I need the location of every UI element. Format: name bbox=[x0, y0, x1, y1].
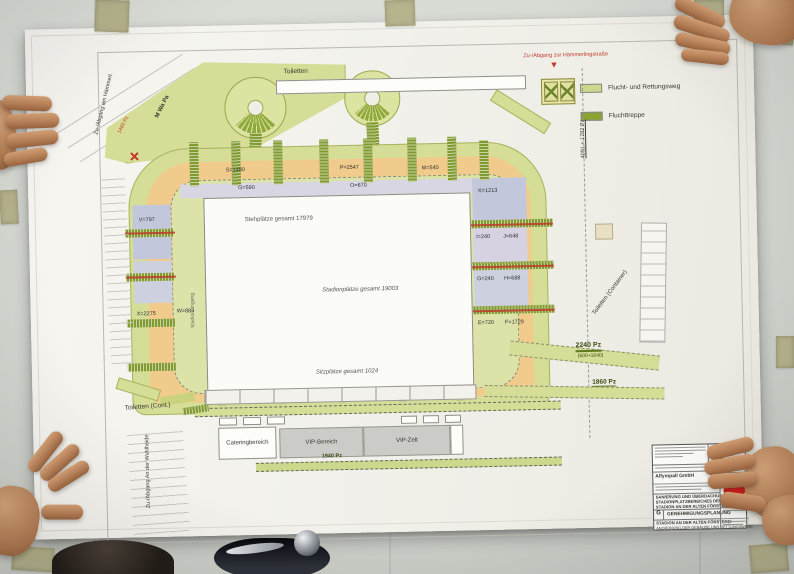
foreground-head bbox=[52, 540, 174, 574]
section-label: X=2275 bbox=[137, 311, 156, 317]
route-capacity-2240-detail: (600+1640) bbox=[578, 354, 604, 360]
parking-ladder-east bbox=[639, 222, 667, 342]
stair-strip bbox=[273, 140, 283, 184]
toiletten-top-label: Toiletten bbox=[284, 68, 308, 76]
section-label: K=1213 bbox=[478, 188, 497, 194]
section-label: E=720 bbox=[478, 320, 494, 326]
finger bbox=[5, 112, 59, 129]
stair-strip bbox=[128, 363, 176, 372]
small-building bbox=[450, 425, 464, 455]
vip-zelt-building: VIP-Zelt bbox=[363, 425, 451, 457]
section-label: H=688 bbox=[504, 275, 520, 281]
catering-label: Cateringbereich bbox=[219, 440, 275, 448]
section-label: P=2547 bbox=[340, 165, 359, 171]
foreground-shiny-object bbox=[214, 530, 330, 574]
object-knob bbox=[294, 530, 320, 556]
existing-building bbox=[595, 223, 613, 239]
stair-x-icon bbox=[560, 81, 574, 101]
stair-strip bbox=[407, 138, 417, 182]
hand-bottom-right bbox=[708, 416, 794, 549]
section-label: G=240 bbox=[477, 276, 494, 282]
finger bbox=[2, 95, 52, 112]
plan-sheet: Zu-/Abgang am Hämmerl. M Wa Pa 1460 Pz T… bbox=[25, 14, 764, 539]
vip-zelt-label: VIP-Zelt bbox=[364, 437, 449, 445]
legend-label-escape-stair: Fluchttreppe bbox=[609, 112, 645, 120]
route-capacity-1940: 1940 Pz bbox=[322, 453, 342, 459]
tape-piece bbox=[94, 0, 129, 33]
legend-swatch-rescue-route bbox=[580, 84, 602, 93]
stair-strip bbox=[231, 141, 241, 185]
legend-label-rescue-route: Flucht- und Rettungsweg bbox=[608, 83, 680, 92]
block-east bbox=[474, 267, 529, 308]
escape-route-band bbox=[484, 385, 664, 400]
small-building bbox=[423, 415, 439, 423]
stair-strip bbox=[189, 142, 199, 186]
small-building bbox=[445, 415, 461, 423]
project-title-cell: SANIERUNG UND ÜBERDACHUNG DES STADIONPLA… bbox=[654, 492, 720, 509]
stair-building bbox=[541, 78, 576, 105]
section-label: I=240 bbox=[476, 234, 490, 240]
hand-left bbox=[0, 81, 65, 182]
object-cell: STADION AN DER ALTEN FÖRSTEREI ANORDNUNG… bbox=[654, 518, 720, 531]
revision-table bbox=[653, 444, 709, 465]
section-label: G=590 bbox=[238, 185, 255, 191]
route-capacity-1860: 1860 Pz bbox=[592, 378, 616, 387]
section-label: O=670 bbox=[350, 183, 367, 189]
tape-piece bbox=[776, 336, 794, 368]
stair-strip bbox=[447, 137, 457, 181]
block-east bbox=[473, 225, 528, 266]
hand-palm bbox=[726, 0, 794, 50]
entrance-marker-icon: ▼ bbox=[550, 61, 559, 71]
thumb bbox=[41, 505, 83, 520]
section-label: F=1729 bbox=[505, 319, 524, 325]
stair-strip bbox=[479, 140, 489, 180]
section-label: J=648 bbox=[503, 233, 518, 239]
section-label: M=540 bbox=[422, 165, 439, 171]
stair-x-icon bbox=[544, 82, 558, 102]
stair-strip bbox=[319, 139, 329, 183]
parking-rows-southwest bbox=[126, 427, 189, 535]
block-west bbox=[134, 261, 173, 304]
small-building bbox=[267, 416, 285, 424]
block-east bbox=[472, 177, 527, 224]
stair-strip bbox=[363, 138, 373, 182]
small-building bbox=[243, 417, 261, 425]
catering-building: Cateringbereich bbox=[218, 427, 277, 460]
stair-strip bbox=[127, 319, 175, 328]
tape-piece bbox=[0, 190, 19, 225]
section-label: V=797 bbox=[139, 217, 155, 223]
tape-piece bbox=[385, 0, 416, 27]
company-name: Alfympall GmbH bbox=[655, 474, 694, 480]
section-label: S=1480 bbox=[226, 167, 245, 173]
vip-bereich-label: VIP-Bereich bbox=[280, 439, 362, 447]
photo-scene: Zu-/Abgang am Hämmerl. M Wa Pa 1460 Pz T… bbox=[0, 0, 794, 574]
small-building bbox=[401, 416, 417, 424]
stair-hub bbox=[365, 91, 380, 106]
hand-palm bbox=[0, 482, 45, 561]
small-building bbox=[219, 417, 237, 425]
route-capacity-2240: 2240 Pz bbox=[575, 342, 601, 352]
tape-piece bbox=[749, 542, 789, 573]
